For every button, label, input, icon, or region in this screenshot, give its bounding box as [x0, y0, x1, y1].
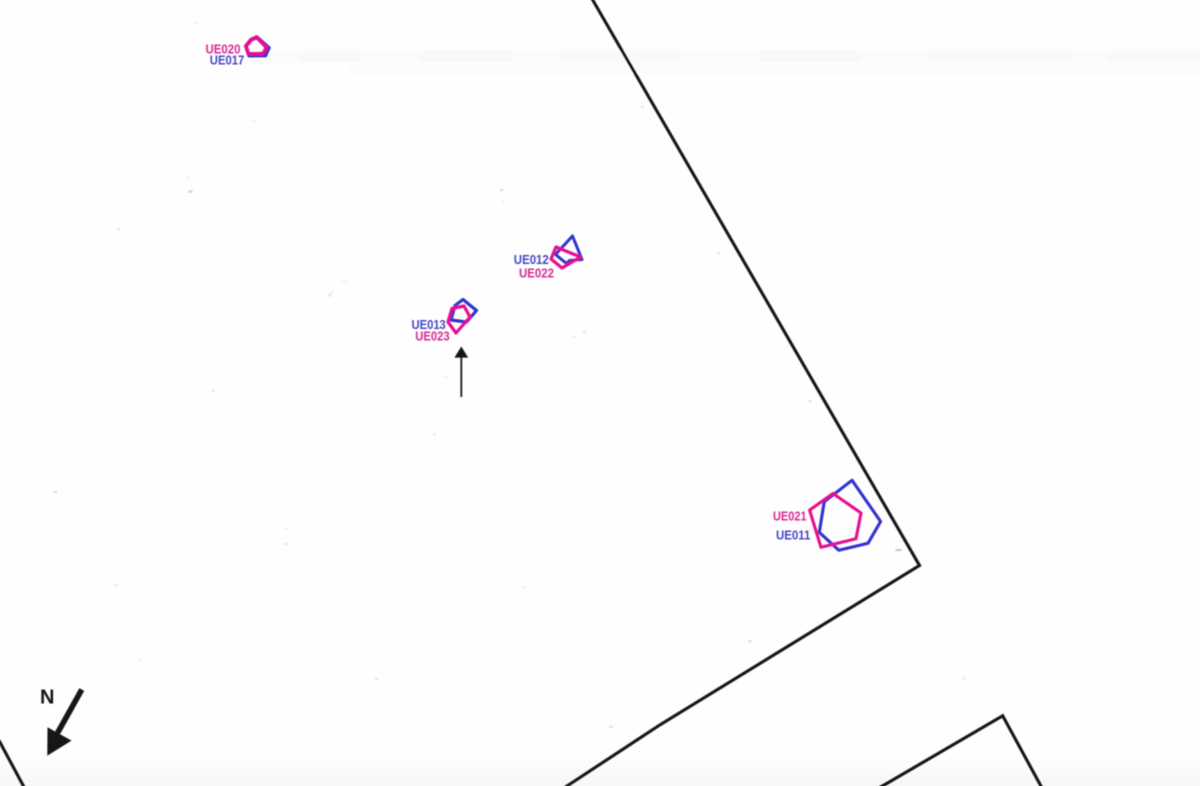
svg-text:N: N — [40, 687, 54, 709]
svg-text:UE011: UE011 — [776, 528, 810, 543]
svg-text:UE021: UE021 — [773, 508, 807, 523]
svg-text:UE023: UE023 — [415, 329, 449, 344]
svg-text:UE017: UE017 — [210, 53, 245, 68]
svg-text:UE022: UE022 — [519, 265, 554, 280]
